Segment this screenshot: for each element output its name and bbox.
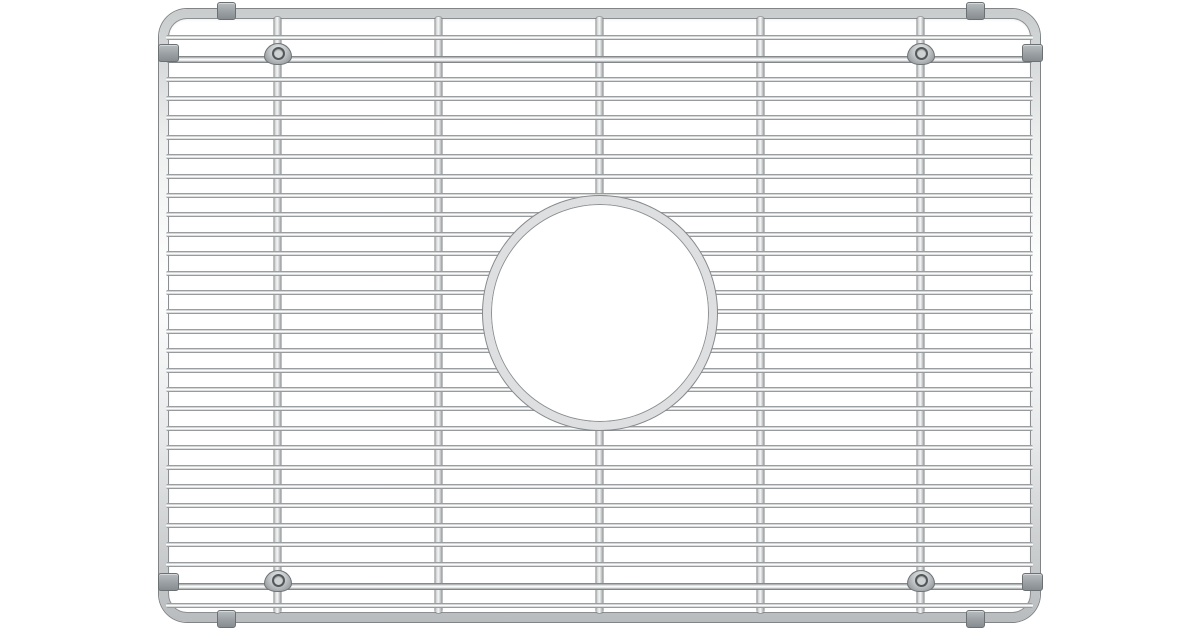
horizontal-wire [166,465,1033,470]
horizontal-wire [166,115,1033,120]
edge-bumper-bottom [966,610,985,628]
foot-hole [915,47,928,60]
support-rail-wire [166,56,1033,63]
foot-hole [272,47,285,60]
drain-hole-ring [483,196,717,430]
horizontal-wire [166,174,1033,179]
rubber-foot [264,570,292,592]
edge-bumper-right [1022,573,1043,591]
horizontal-wire [166,135,1033,140]
horizontal-wire [166,523,1033,528]
product-image [0,0,1200,630]
horizontal-wire [166,96,1033,101]
rubber-foot [264,43,292,65]
horizontal-wire [166,445,1033,450]
edge-bumper-top [966,2,985,20]
horizontal-wire [166,484,1033,489]
horizontal-wire [166,77,1033,82]
foot-hole [915,574,928,587]
horizontal-wire [166,154,1033,159]
edge-bumper-left [158,44,179,62]
horizontal-wire [166,603,1033,608]
horizontal-wire [166,542,1033,547]
horizontal-wire [166,503,1033,508]
edge-bumper-top [217,2,236,20]
horizontal-wire [166,35,1033,40]
edge-bumper-right [1022,44,1043,62]
edge-bumper-left [158,573,179,591]
rubber-foot [907,570,935,592]
support-rail-wire [166,583,1033,590]
foot-hole [272,574,285,587]
edge-bumper-bottom [217,610,236,628]
rubber-foot [907,43,935,65]
horizontal-wire [166,562,1033,567]
